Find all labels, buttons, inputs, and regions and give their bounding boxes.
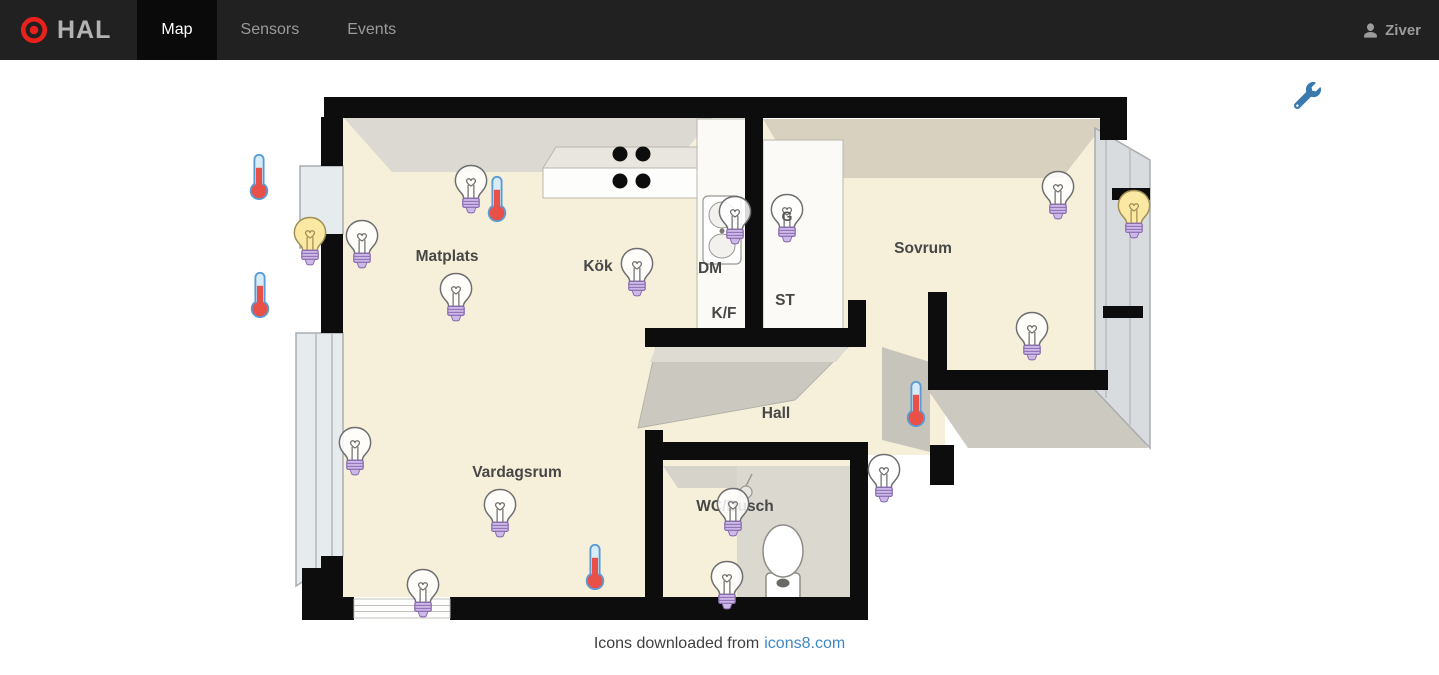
credits-text: Icons downloaded from [594, 635, 759, 652]
hal-logo[interactable]: HAL [0, 0, 137, 60]
light-bulb-on-icon[interactable] [291, 215, 329, 266]
thermometer-icon[interactable] [248, 269, 272, 321]
thermometer-icon[interactable] [247, 151, 271, 203]
map-settings-button[interactable] [1292, 80, 1323, 111]
top-navigation-bar: HAL MapSensorsEvents Ziver [0, 0, 1439, 60]
main-nav: MapSensorsEvents [137, 0, 420, 60]
light-bulb-off-icon[interactable] [343, 218, 381, 269]
tab-sensors[interactable]: Sensors [217, 0, 324, 60]
wrench-icon [1294, 82, 1321, 109]
light-bulb-off-icon[interactable] [437, 271, 475, 322]
user-menu[interactable]: Ziver [1362, 0, 1421, 60]
light-bulb-off-icon[interactable] [481, 487, 519, 538]
light-bulb-off-icon[interactable] [618, 246, 656, 297]
light-bulb-off-icon[interactable] [336, 425, 374, 476]
thermometer-icon[interactable] [583, 541, 607, 593]
toilet [763, 525, 803, 600]
light-bulb-off-icon[interactable] [716, 194, 754, 245]
light-bulb-off-icon[interactable] [714, 486, 752, 537]
light-bulb-on-icon[interactable] [1115, 188, 1153, 239]
light-bulb-off-icon[interactable] [404, 567, 442, 618]
light-bulb-off-icon[interactable] [708, 559, 746, 610]
light-bulb-off-icon[interactable] [1013, 310, 1051, 361]
svg-text:G: G [782, 207, 793, 223]
icons8-link[interactable]: icons8.com [764, 635, 845, 652]
thermometer-icon[interactable] [904, 378, 928, 430]
tab-events[interactable]: Events [323, 0, 420, 60]
group-light-bulb-icon[interactable]: G [768, 192, 806, 243]
username: Ziver [1385, 22, 1421, 39]
target-logo-icon [20, 16, 48, 44]
hal-app: HAL MapSensorsEvents Ziver MatplatsKökDM… [0, 0, 1439, 675]
tab-map[interactable]: Map [137, 0, 216, 60]
light-bulb-off-icon[interactable] [1039, 169, 1077, 220]
brand-name: HAL [57, 16, 111, 45]
thermometer-icon[interactable] [485, 173, 509, 225]
light-bulb-off-icon[interactable] [865, 452, 903, 503]
user-icon [1362, 22, 1379, 39]
credits: Icons downloaded fromicons8.com [0, 635, 1439, 653]
